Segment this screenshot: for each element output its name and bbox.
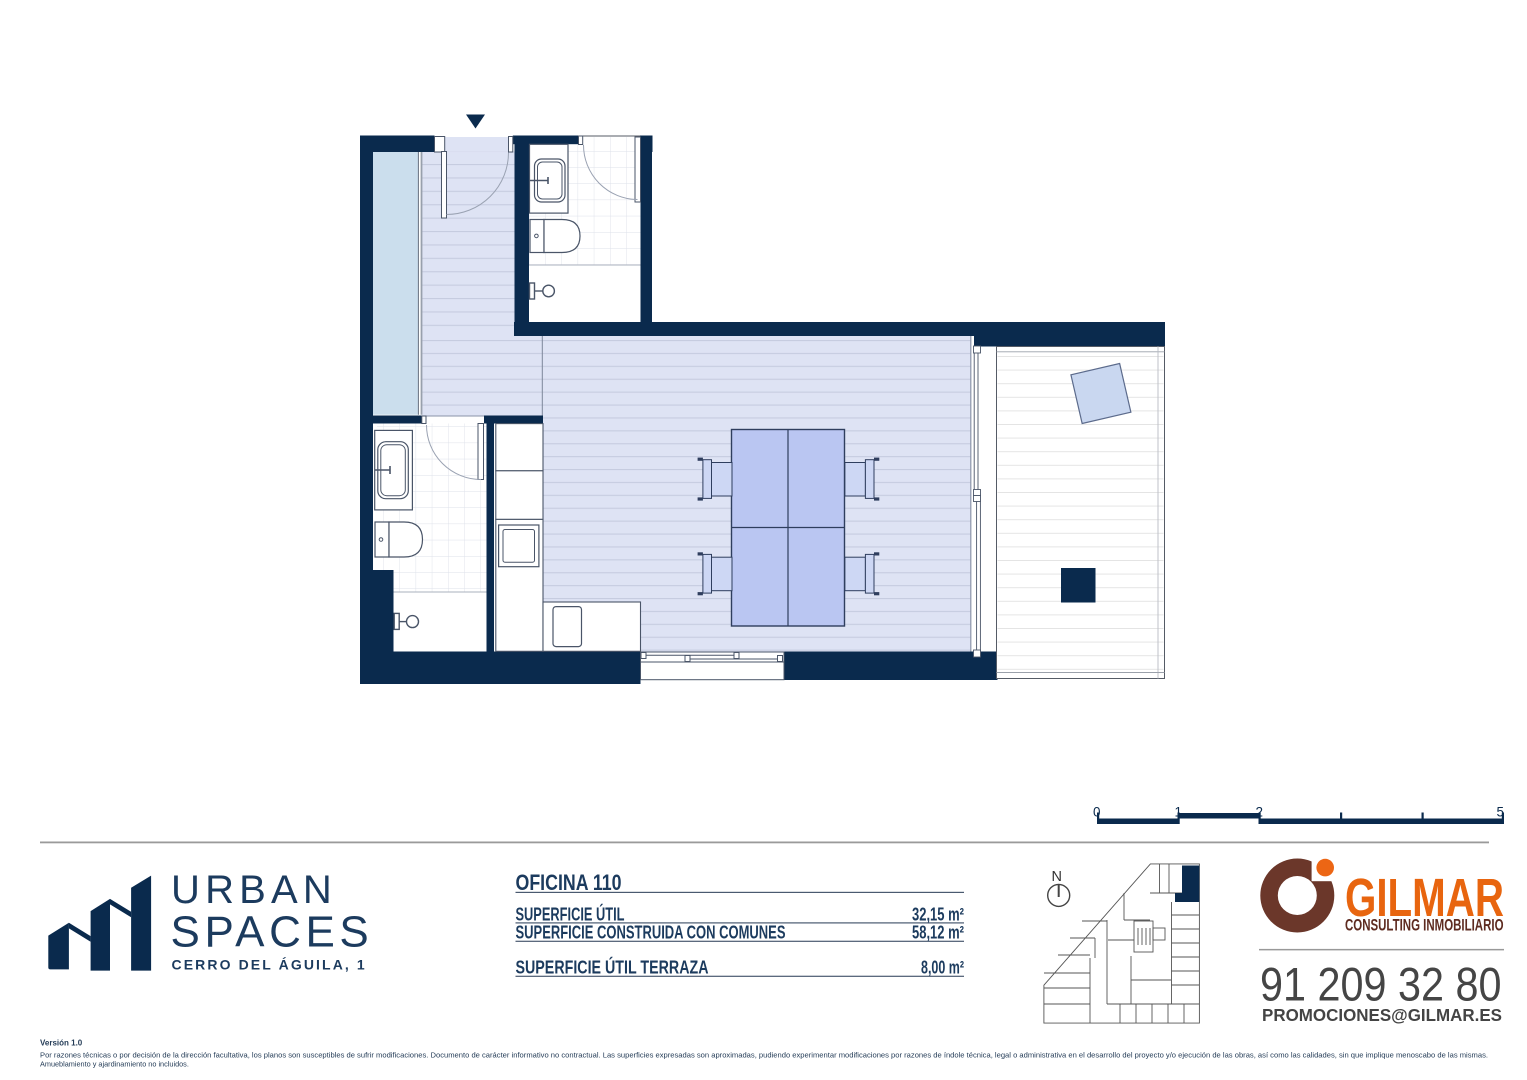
svg-text:1: 1 [1175,805,1183,820]
svg-text:8,00 m²: 8,00 m² [921,958,964,978]
svg-text:0: 0 [1093,805,1101,820]
svg-text:SUPERFICIE ÚTIL TERRAZA: SUPERFICIE ÚTIL TERRAZA [516,957,709,978]
svg-text:32,15 m²: 32,15 m² [912,905,964,925]
svg-text:91 209 32 80: 91 209 32 80 [1260,958,1502,1011]
svg-text:CERRO DEL ÁGUILA, 1: CERRO DEL ÁGUILA, 1 [172,957,368,973]
svg-text:URBAN: URBAN [171,868,337,912]
svg-text:Por razones técnicas o por dec: Por razones técnicas o por decisión de l… [40,1051,1488,1060]
svg-text:N: N [1052,869,1062,885]
svg-text:58,12 m²: 58,12 m² [912,923,964,943]
svg-text:CONSULTING INMOBILIARIO: CONSULTING INMOBILIARIO [1345,917,1504,935]
svg-text:OFICINA 110: OFICINA 110 [516,870,622,895]
svg-text:SUPERFICIE CONSTRUIDA CON COMU: SUPERFICIE CONSTRUIDA CON COMUNES [516,923,786,943]
svg-text:2: 2 [1256,805,1264,820]
svg-text:SPACES: SPACES [171,908,374,957]
svg-text:PROMOCIONES@GILMAR.ES: PROMOCIONES@GILMAR.ES [1262,1005,1502,1025]
svg-text:5: 5 [1497,805,1505,820]
svg-text:Versión 1.0: Versión 1.0 [40,1039,83,1048]
svg-text:SUPERFICIE ÚTIL: SUPERFICIE ÚTIL [516,904,625,925]
svg-text:Amueblamiento y ajardinamiento: Amueblamiento y ajardinamiento no inclui… [40,1060,189,1069]
